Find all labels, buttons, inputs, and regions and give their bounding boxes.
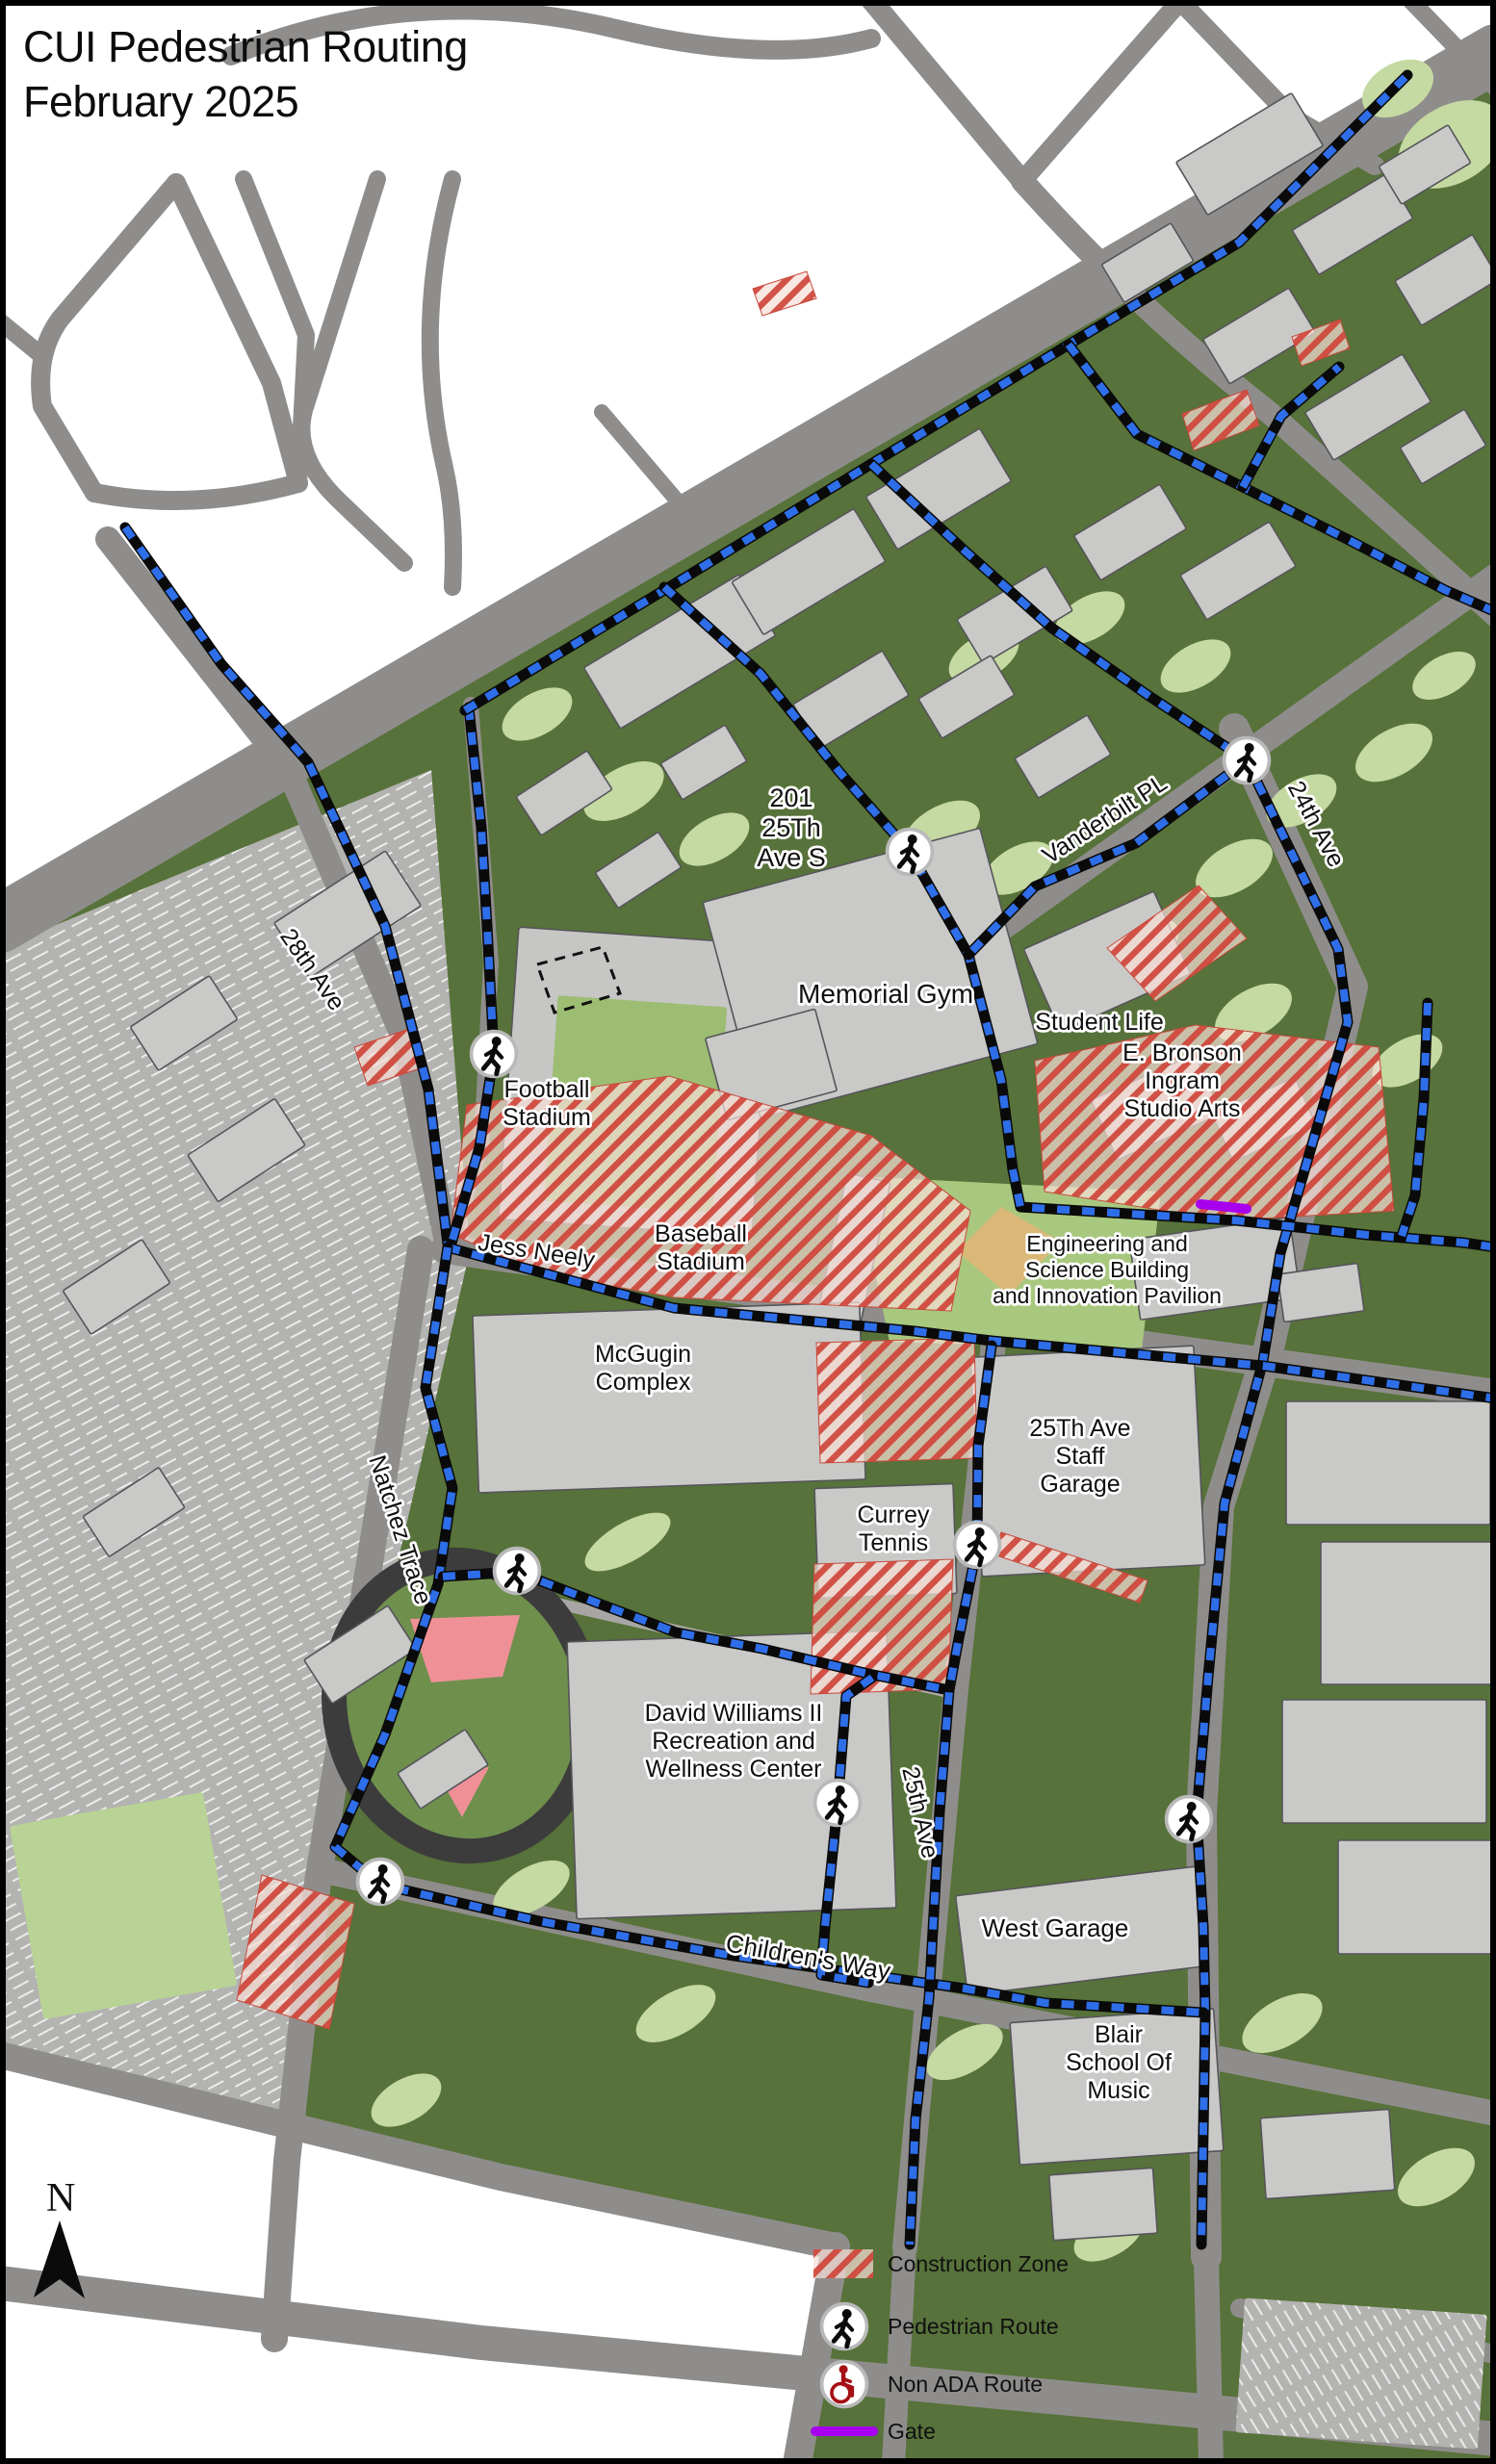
map-label-text: West Garage: [982, 1913, 1129, 1942]
map-title-line2: February 2025: [23, 74, 468, 129]
map-label-text: Engineering andScience Buildingand Innov…: [993, 1231, 1222, 1308]
pedestrian-route-icon: [888, 830, 933, 875]
map-label-text: BaseballStadium: [655, 1220, 747, 1275]
map-canvas: 20125ThAve SMemorial GymStudent LifeE. B…: [0, 0, 1496, 2464]
gate-marker: [1200, 1204, 1247, 1209]
pedestrian-route-icon: [1167, 1797, 1212, 1842]
map-label-text: McGuginComplex: [595, 1341, 691, 1396]
pedestrian-route-icon: [1225, 738, 1270, 783]
legend-label-construction: Construction Zone: [888, 2251, 1069, 2276]
map-label: Engineering andScience Buildingand Innov…: [993, 1231, 1222, 1308]
pedestrian-route-icon: [358, 1860, 403, 1905]
north-label: N: [46, 2176, 75, 2220]
construction-zone: [816, 1338, 977, 1463]
road: [1206, 2257, 1211, 2464]
map-title-line1: CUI Pedestrian Routing: [23, 19, 468, 74]
building: [1338, 1840, 1496, 1954]
building: [1049, 2168, 1157, 2240]
map-label: Student Life: [1035, 1009, 1163, 1036]
map-label: McGuginComplex: [595, 1341, 691, 1396]
map-label: BaseballStadium: [655, 1220, 747, 1275]
map-label-text: FootballStadium: [503, 1076, 591, 1131]
map-label-text: Memorial Gym: [798, 979, 973, 1009]
map-label-text: David Williams IIRecreation andWellness …: [645, 1700, 823, 1783]
pedestrian-routing-map: 20125ThAve SMemorial GymStudent LifeE. B…: [0, 0, 1496, 2464]
map-label: West Garage: [982, 1913, 1129, 1942]
field-feature: [10, 1792, 237, 2019]
legend-label-pedestrian: Pedestrian Route: [888, 2314, 1059, 2339]
building: [1260, 2109, 1395, 2198]
non-ada-route-icon: [822, 2362, 867, 2407]
map-label-text: CurreyTennis: [857, 1501, 930, 1556]
map-label: CurreyTennis: [857, 1501, 930, 1556]
legend-label-non-ada: Non ADA Route: [888, 2372, 1043, 2397]
field-feature: [1235, 2297, 1486, 2449]
pedestrian-route-icon: [472, 1032, 517, 1077]
building: [1286, 1401, 1490, 1525]
building: [1321, 1542, 1496, 1684]
building: [1277, 1263, 1364, 1322]
map-label: David Williams IIRecreation andWellness …: [645, 1700, 823, 1783]
pedestrian-route-icon: [955, 1523, 1000, 1568]
pedestrian-route-icon: [822, 2304, 867, 2349]
map-label-text: Student Life: [1035, 1009, 1163, 1036]
map-label: FootballStadium: [503, 1076, 591, 1131]
building: [473, 1302, 865, 1493]
pedestrian-route-icon: [815, 1781, 861, 1826]
map-label: Memorial Gym: [798, 979, 973, 1009]
map-title: CUI Pedestrian Routing February 2025: [23, 19, 468, 129]
legend-label-gate: Gate: [888, 2419, 936, 2444]
pedestrian-route-icon: [495, 1549, 540, 1594]
building: [1282, 1700, 1486, 1823]
gates-layer: [1200, 1204, 1247, 1209]
construction-zone-swatch: [813, 2249, 873, 2278]
